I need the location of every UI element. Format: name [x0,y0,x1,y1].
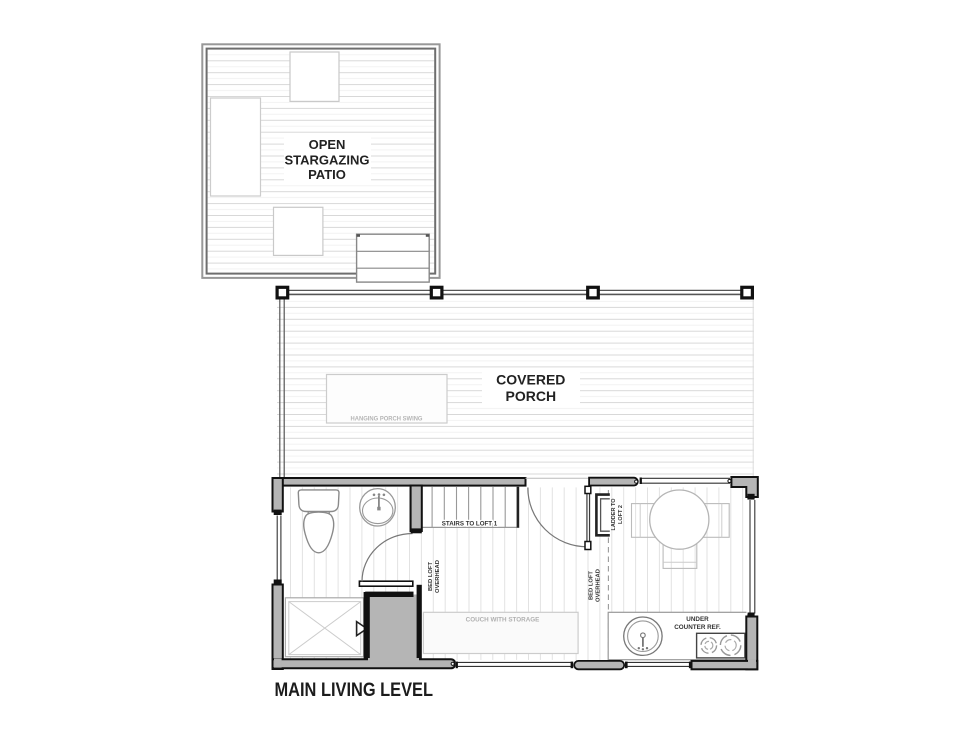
svg-text:PORCH: PORCH [506,388,557,404]
svg-text:LADDER TO: LADDER TO [611,498,617,531]
svg-text:BED LOFT: BED LOFT [589,571,595,600]
svg-text:OVERHEAD: OVERHEAD [435,560,441,593]
svg-text:OPEN: OPEN [309,137,346,152]
svg-text:OVERHEAD: OVERHEAD [596,569,602,602]
svg-text:MAIN LIVING LEVEL: MAIN LIVING LEVEL [275,679,434,701]
svg-text:COVERED: COVERED [496,372,565,388]
svg-text:STAIRS TO LOFT 1: STAIRS TO LOFT 1 [442,520,498,527]
svg-text:UNDER: UNDER [686,616,709,623]
svg-text:STARGAZING: STARGAZING [285,152,370,167]
svg-text:COUNTER REF.: COUNTER REF. [674,624,721,631]
svg-text:PATIO: PATIO [308,167,346,182]
svg-text:BED LOFT: BED LOFT [428,562,434,591]
svg-text:LOFT 2: LOFT 2 [618,505,624,524]
svg-text:COUCH WITH STORAGE: COUCH WITH STORAGE [466,617,540,624]
svg-text:HANGING PORCH SWING: HANGING PORCH SWING [351,417,423,423]
